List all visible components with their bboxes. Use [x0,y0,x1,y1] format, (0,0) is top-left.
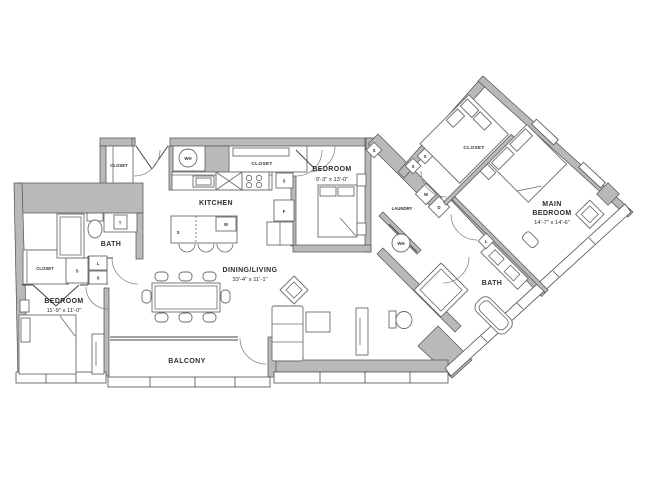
dining-chair [155,313,168,322]
cooktop [242,172,269,190]
balcony-rail-window [108,377,270,387]
toilet-icon [88,220,102,238]
diagonal-window [445,204,631,376]
dining-living-label: DINING/LIVING [223,267,278,274]
bedroom-mid-s-tag: S [373,148,376,153]
dining-living-dims: 33'-4" x 11'-1" [232,277,267,283]
floor-plan: KITCHEN DINING/LIVING 33'-4" x 11'-1" BA… [0,0,650,490]
closet-s-left-tag: S [76,269,79,274]
main-bedroom-label-2: BEDROOM [532,210,571,217]
dining-chair [221,290,230,303]
dining-table [152,283,220,312]
toilet-tank [389,311,396,328]
sofa [272,306,303,361]
water-heater-2-tag: WH [397,241,404,246]
bedroom-left-dims: 11'-9" x 11'-0" [47,308,82,314]
dining-living-fixtures [142,272,368,361]
stool [198,244,214,252]
nightstand [20,300,29,312]
media-console [356,308,368,355]
dining-chair [155,272,168,281]
side-table [280,276,308,304]
bath-left-door-arc [112,258,138,284]
dining-chair [142,290,151,303]
kitchen-label: KITCHEN [199,200,233,207]
closet-entry-label: CLOSET [110,163,128,168]
island-s-tag: S [177,230,180,235]
shower-left [57,214,84,258]
bedroom-left-label: BEDROOM [44,298,83,305]
bath-right-l-tag: L [485,239,488,244]
pillow [21,318,30,342]
pantry-tag: S [283,179,286,184]
pillow [338,187,354,196]
bath-left-label: BATH [101,241,122,248]
balcony-label: BALCONY [168,358,205,365]
balcony-door-arc [240,338,266,364]
fridge-tag: F [283,209,286,214]
pillow [320,187,336,196]
dryer-tag: D [437,205,440,210]
water-heater-1-tag: WH [184,156,191,161]
floor-plan-drawing: KITCHEN DINING/LIVING 33'-4" x 11'-1" BA… [0,0,650,490]
stool [217,244,233,252]
entry-door-leaf [136,146,152,169]
linen-left-tag: L [97,261,100,266]
closet-main-label: CLOSET [463,145,484,151]
shelf-left-tag: S [97,276,100,281]
laundry-s2-tag: S [424,154,427,159]
closet-kitchen-label: CLOSET [251,161,272,167]
bench [521,231,539,249]
living-window [274,372,448,383]
laundry-s1-tag: S [412,164,415,169]
towel-tag: T [119,221,122,226]
closet-left-label: CLOSET [36,266,54,271]
nightstand [357,174,366,186]
bedroom-mid-label: BEDROOM [312,166,351,173]
main-bedroom-dims: 14'-7" x 14'-6" [534,220,570,226]
stool [179,244,195,252]
toilet-icon [396,312,412,329]
closet-shelf [233,148,289,156]
chair [576,200,604,228]
dining-chair [203,272,216,281]
main-bedroom-label-1: MAIN [542,201,562,208]
shower-right [414,263,468,317]
dining-chair [179,313,192,322]
bath-right-label: BATH [482,280,503,287]
nightstand [357,223,366,235]
dining-chair [203,313,216,322]
dining-chair [179,272,192,281]
laundry-label: LAUNDRY [392,206,413,211]
coffee-table [306,312,330,332]
kitchen-fixtures [171,172,294,252]
dresser [92,334,104,374]
bedroom-mid-dims: 9'-3" x 13'-0" [316,177,348,183]
